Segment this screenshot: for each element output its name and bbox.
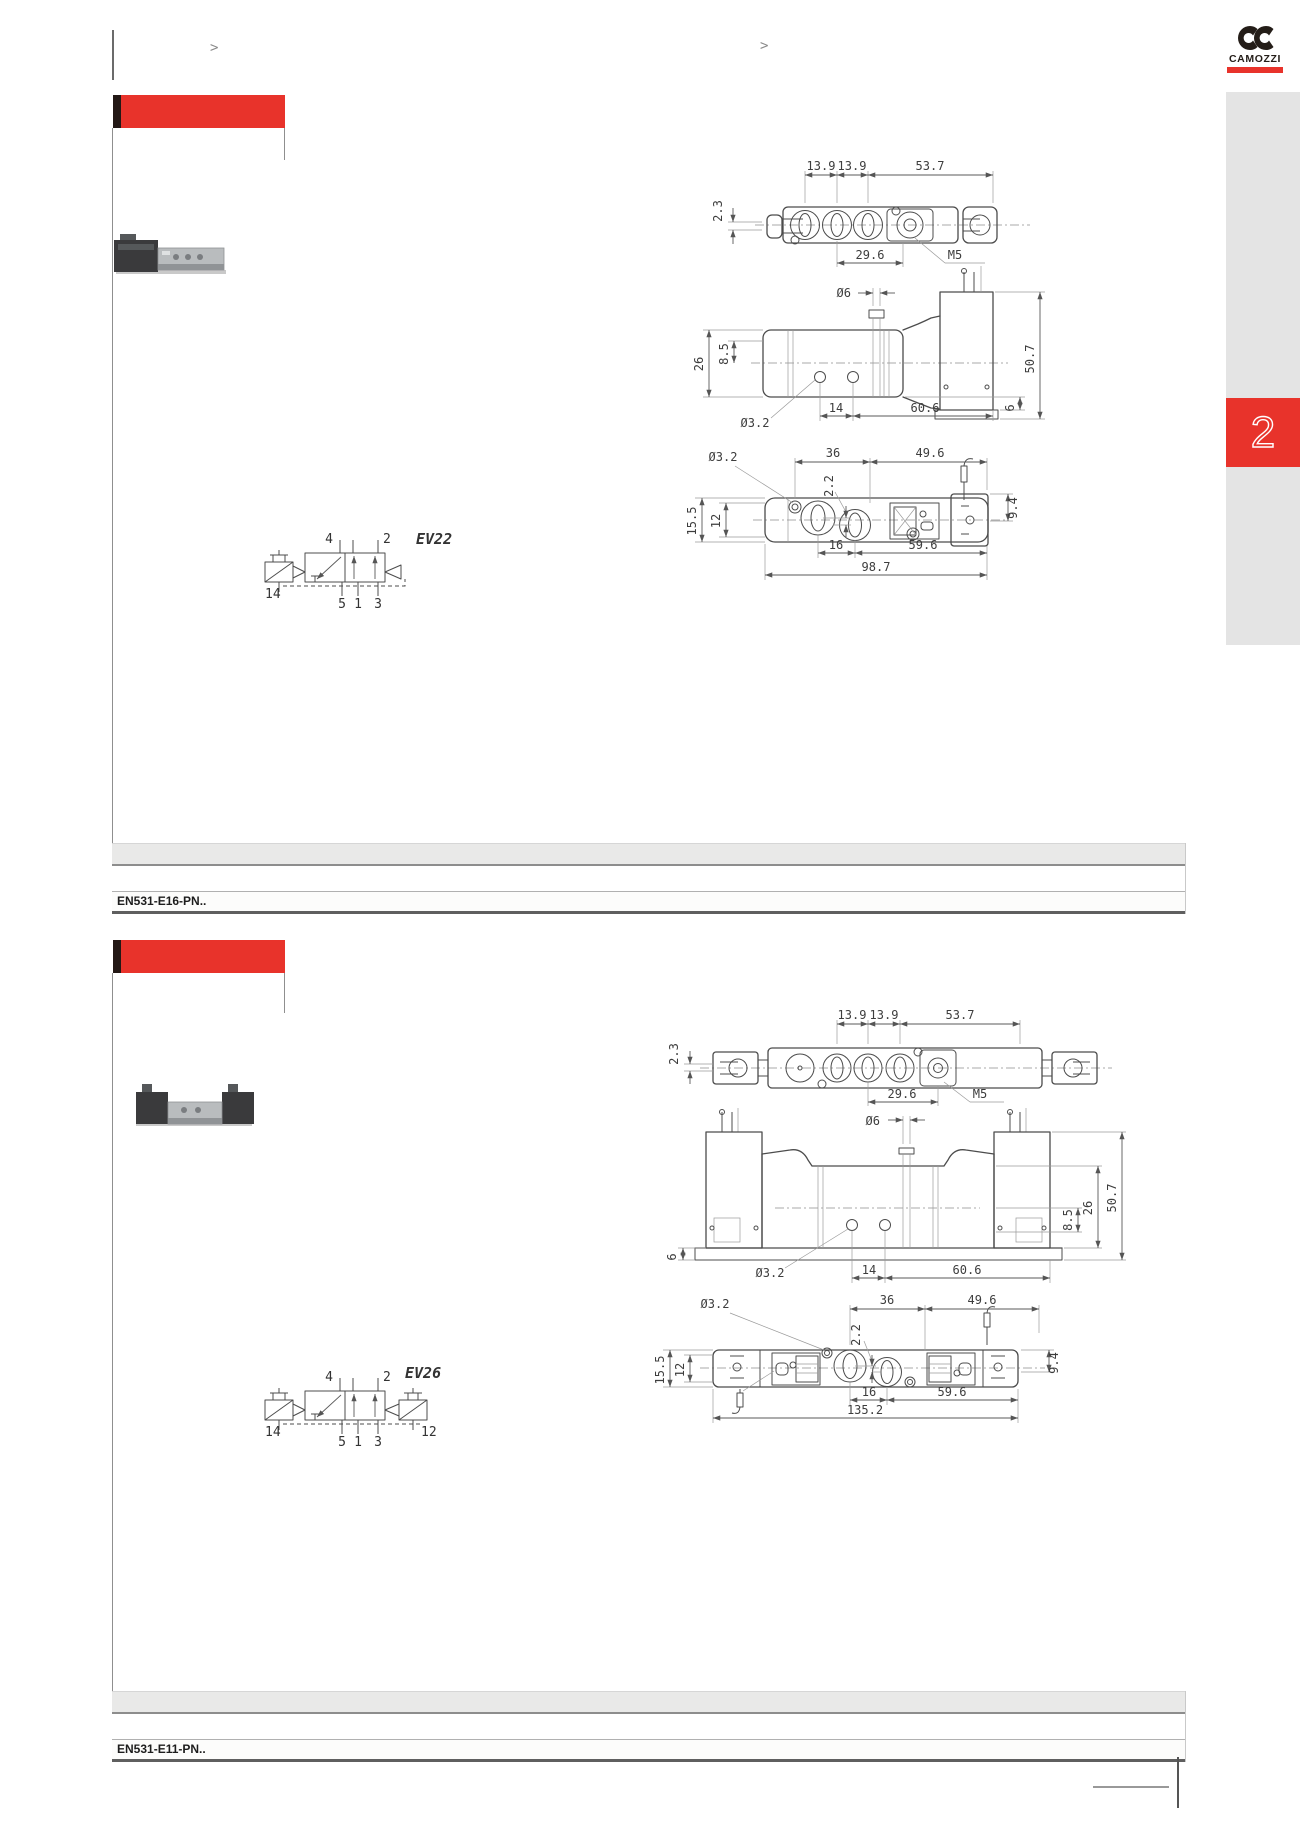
- port-label: 14: [265, 587, 281, 602]
- drawing-top-view-2: 13.9 13.9 53.7 2.3 29.6 M5: [650, 1008, 1130, 1113]
- dim-label: 2.2: [822, 475, 836, 497]
- table-spacer-row: [112, 1714, 1185, 1740]
- dim-label: 9.4: [1047, 1352, 1061, 1374]
- dim-label: 26: [1081, 1201, 1095, 1215]
- dim-label: M5: [948, 248, 962, 262]
- dim-label: 13.9: [870, 1008, 899, 1022]
- port-label: 3: [374, 1435, 382, 1450]
- port-label: 14: [265, 1425, 281, 1440]
- dim-label: 59.6: [938, 1385, 967, 1399]
- dim-label: 16: [829, 538, 843, 552]
- dim-label: 13.9: [838, 1008, 867, 1022]
- dimension-lines: [684, 1020, 1020, 1106]
- symbol-code: EV26: [405, 1364, 441, 1382]
- pneumatic-symbol-ev22: 4 2 14 5 1 3 EV22: [253, 528, 458, 613]
- table-header-row: [112, 843, 1185, 866]
- drawing-bottom-view-2: Ø3.2 36 49.6 2.2 15.5 12 16 59.6 135.2 9…: [650, 1293, 1130, 1438]
- port-label: 2: [383, 1370, 391, 1385]
- dim-label: 59.6: [909, 538, 938, 552]
- breadcrumb-separator: >: [760, 38, 768, 54]
- section-frame-right: [284, 128, 285, 160]
- dimension-lines: [695, 458, 1013, 580]
- dim-label: 14: [862, 1263, 876, 1277]
- port-label: 4: [325, 532, 333, 547]
- dim-label: 36: [880, 1293, 894, 1307]
- dim-label: Ø3.2: [709, 450, 738, 464]
- drawing-bottom-view-1: Ø3.2 36 49.6 2.2 15.5 12 16 59.6 98.7 9.…: [683, 446, 1035, 596]
- dim-label: 36: [826, 446, 840, 460]
- chapter-tab[interactable]: 2: [1226, 398, 1300, 467]
- dim-label: 60.6: [953, 1263, 982, 1277]
- margin-rule: [112, 30, 114, 80]
- dim-label: 6: [1003, 404, 1017, 411]
- port-label: 5: [338, 1435, 346, 1450]
- dim-label: 49.6: [968, 1293, 997, 1307]
- camozzi-logo: CAMOZZI: [1227, 24, 1283, 73]
- dim-label: 29.6: [888, 1087, 917, 1101]
- symbol-code: EV22: [416, 530, 452, 548]
- dim-label: 29.6: [856, 248, 885, 262]
- dim-label: 8.5: [717, 343, 731, 365]
- part-number-row: EN531-E11-PN..: [112, 1740, 1185, 1762]
- dimension-lines: [678, 1116, 1126, 1283]
- footer-corner-rule: [1177, 1757, 1179, 1808]
- dim-label: Ø6: [866, 1114, 880, 1128]
- dim-label: 53.7: [916, 159, 945, 173]
- section-header-edge: [113, 940, 121, 973]
- product-photo-double-solenoid: [130, 1076, 258, 1130]
- dim-label: 16: [862, 1385, 876, 1399]
- pneumatic-symbol-ev26: 4 2 14 5 1 3 12 EV26: [253, 1366, 463, 1451]
- dim-label: 53.7: [946, 1008, 975, 1022]
- dim-label: 2.2: [849, 1324, 863, 1346]
- section-frame-left: [112, 973, 113, 1753]
- dim-label: 2.3: [667, 1043, 681, 1065]
- dim-label: 12: [709, 514, 723, 528]
- section-header-edge: [113, 95, 121, 128]
- dim-label: M5: [973, 1087, 987, 1101]
- dim-label: Ø6: [837, 286, 851, 300]
- logo-red-underline: [1227, 67, 1283, 73]
- section-frame-right: [284, 973, 285, 1013]
- port-label: 4: [325, 1370, 333, 1385]
- port-label: 5: [338, 597, 346, 612]
- port-label: 2: [383, 532, 391, 547]
- breadcrumb-separator: >: [210, 40, 218, 56]
- port-label: 12: [421, 1425, 437, 1440]
- dim-label: 26: [692, 357, 706, 371]
- dim-label: 98.7: [862, 560, 891, 574]
- dim-label: 135.2: [847, 1403, 883, 1417]
- chapter-sidebar: [1226, 92, 1300, 645]
- chapter-number: 2: [1251, 408, 1275, 458]
- part-table: EN531-E11-PN..: [112, 1691, 1186, 1762]
- port-label: 1: [354, 1435, 362, 1450]
- dim-label: 50.7: [1105, 1184, 1119, 1213]
- port-lines: [279, 1378, 413, 1434]
- drawing-front-view-2: Ø6 6 Ø3.2 14 60.6 8.5 26 50.7: [650, 1108, 1160, 1293]
- valve-body: [283, 553, 405, 586]
- table-header-row: [112, 1691, 1185, 1714]
- part-table: EN531-E16-PN..: [112, 843, 1186, 914]
- dim-label: 12: [673, 1363, 687, 1377]
- port-label: 3: [374, 597, 382, 612]
- dim-label: 50.7: [1023, 345, 1037, 374]
- table-spacer-row: [112, 866, 1185, 892]
- body-outline: [767, 207, 997, 244]
- body-outline: [765, 459, 988, 546]
- solenoid-operator-right: [399, 1388, 427, 1420]
- solenoid-operator-left: [265, 1388, 305, 1420]
- dimension-lines: [703, 288, 1045, 421]
- dim-label: 6: [665, 1253, 679, 1260]
- dim-label: 15.5: [685, 507, 699, 536]
- dim-label: 49.6: [916, 446, 945, 460]
- body-outline: [695, 1108, 1062, 1260]
- dim-label: 13.9: [807, 159, 836, 173]
- drawing-side-view-1: Ø6 26 8.5 Ø3.2 14 60.6 6 50.7: [693, 266, 1063, 441]
- dim-label: Ø3.2: [741, 416, 770, 430]
- logo-brand-text: CAMOZZI: [1227, 53, 1283, 65]
- drawing-top-view-1: 13.9 13.9 53.7 2.3 29.6 M5: [700, 145, 1060, 280]
- port-label: 1: [354, 597, 362, 612]
- dim-label: 13.9: [838, 159, 867, 173]
- section-header-bar: [113, 95, 285, 128]
- product-photo-single-solenoid: [106, 226, 232, 278]
- dim-label: 8.5: [1061, 1209, 1075, 1231]
- dim-label: 60.6: [911, 401, 940, 415]
- part-number-row: EN531-E16-PN..: [112, 892, 1185, 914]
- catalog-page: > > CAMOZZI 2: [0, 0, 1300, 1839]
- body-outline: [763, 266, 998, 419]
- solenoid-operator: [265, 550, 305, 582]
- dim-label: 2.3: [711, 200, 725, 222]
- dim-label: Ø3.2: [701, 1297, 730, 1311]
- section-header-bar: [113, 940, 285, 973]
- camozzi-logo-mark: [1233, 24, 1277, 52]
- dim-label: 15.5: [653, 1356, 667, 1385]
- dim-label: Ø3.2: [756, 1266, 785, 1280]
- dim-label: 9.4: [1006, 497, 1020, 519]
- footer-page-rule: [1093, 1786, 1169, 1788]
- dim-label: 14: [829, 401, 843, 415]
